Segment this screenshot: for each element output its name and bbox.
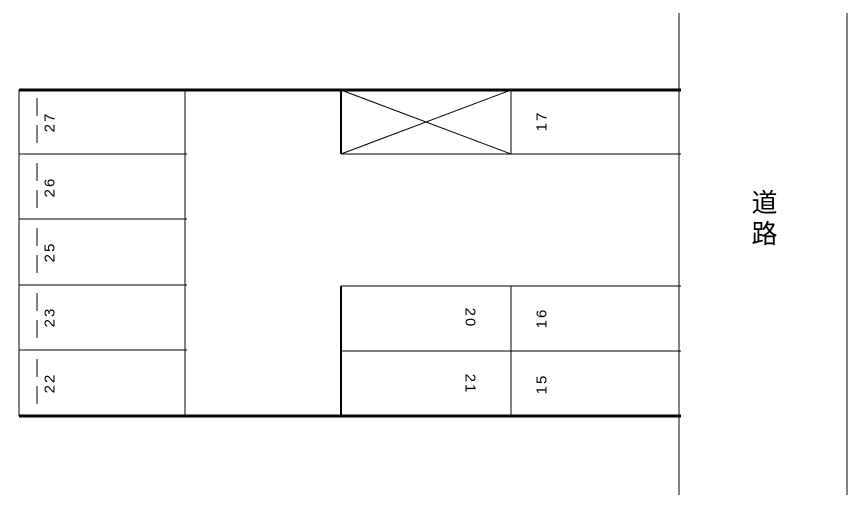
lot-outline [19,90,681,416]
stall-label-27: 27 [42,112,59,133]
stall-label-20: 20 [462,308,479,329]
parking-lot-drawing: 27 26 25 23 22 17 20 21 16 15 [0,0,865,509]
parking-lot-diagram: 27 26 25 23 22 17 20 21 16 15 [0,0,865,509]
road-label: 道路 [748,189,782,259]
crossed-out-stall [341,90,511,154]
stall-label-21: 21 [462,374,479,395]
left-stall-column: 27 26 25 23 22 [19,90,187,416]
stall-label-16: 16 [534,308,551,329]
stall-label-25: 25 [42,242,59,263]
bottom-right-block: 20 21 16 15 [341,286,681,416]
stall-label-23: 23 [42,307,59,328]
stall-label-26: 26 [42,177,59,198]
stall-label-15: 15 [534,374,551,395]
top-right-block: 17 [341,90,681,154]
stall-label-22: 22 [42,373,59,394]
stall-label-17: 17 [534,111,551,132]
